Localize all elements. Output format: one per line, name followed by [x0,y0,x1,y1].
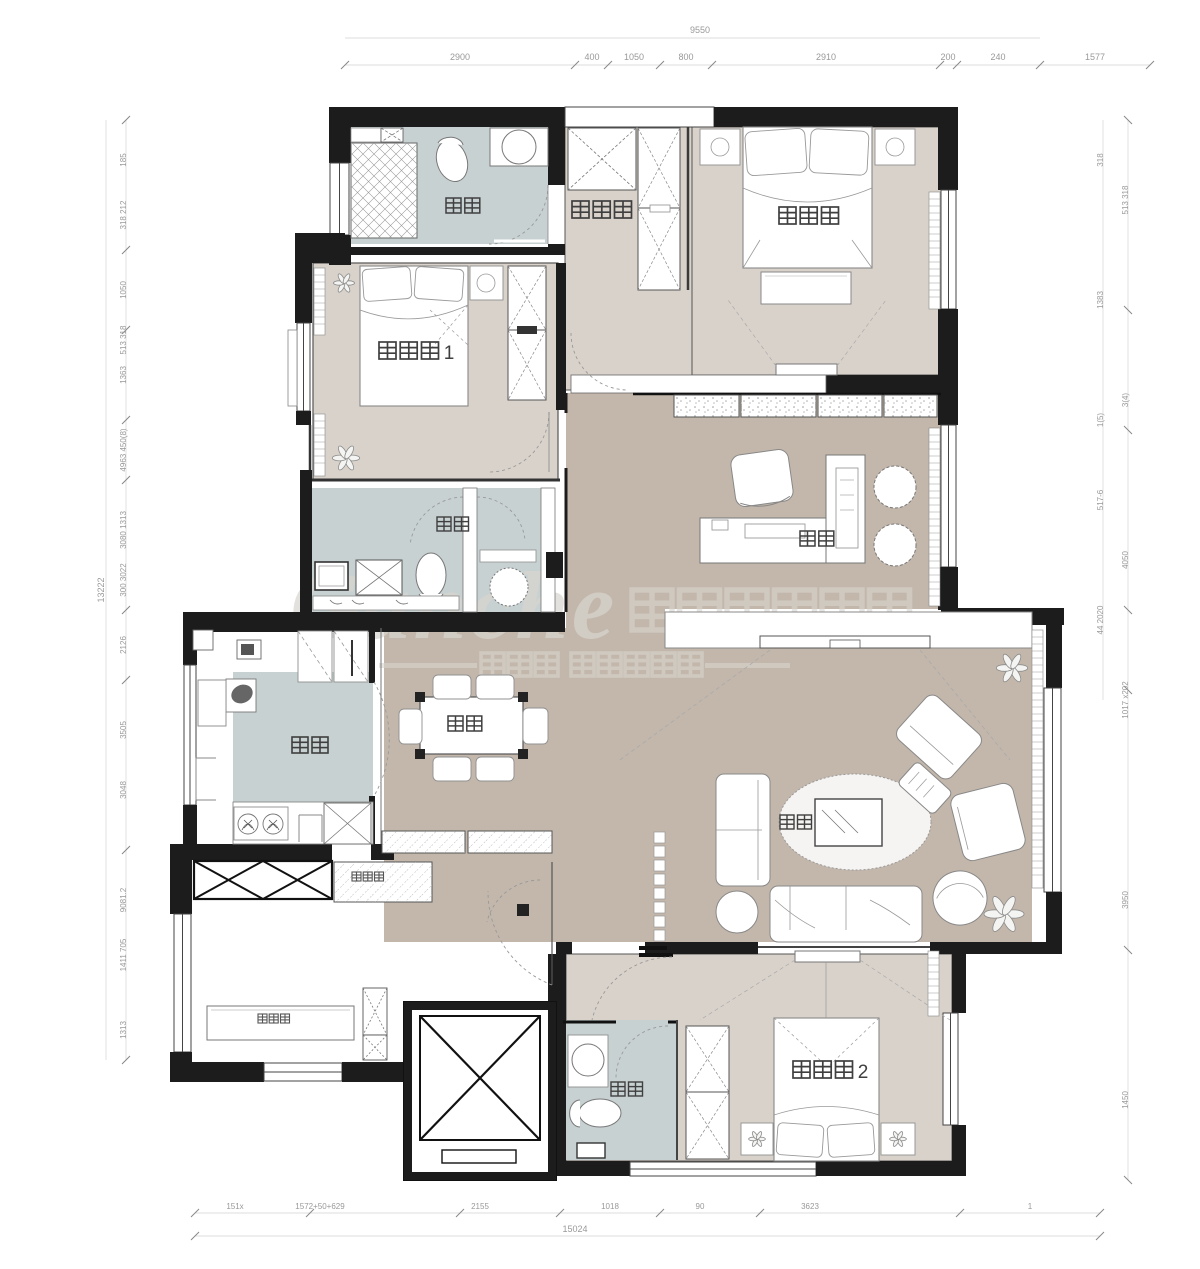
svg-text:3048: 3048 [119,781,128,799]
svg-text:1577: 1577 [1085,52,1105,62]
svg-text:200: 200 [940,52,955,62]
svg-text:800: 800 [678,52,693,62]
svg-text:1: 1 [1028,1202,1033,1211]
svg-text:513 318: 513 318 [119,325,128,354]
svg-text:3505: 3505 [119,721,128,739]
svg-text:44 2020: 44 2020 [1096,605,1105,634]
svg-text:3080 1313: 3080 1313 [119,511,128,549]
svg-text:15024: 15024 [562,1224,587,1234]
svg-text:1050: 1050 [119,281,128,299]
svg-text:2: 2 [858,1062,869,1083]
svg-text:4963 450(8): 4963 450(8) [119,428,128,471]
svg-text:1: 1 [444,343,455,364]
svg-text:1313: 1313 [119,1021,128,1039]
svg-text:9550: 9550 [690,25,710,35]
svg-text:2155: 2155 [471,1202,489,1211]
svg-text:1572+50+629: 1572+50+629 [295,1202,345,1211]
svg-text:513 318: 513 318 [1121,185,1130,214]
svg-text:1(5): 1(5) [1096,413,1105,428]
svg-text:185: 185 [119,153,128,167]
svg-text:1383: 1383 [1096,291,1105,309]
svg-text:1363: 1363 [119,366,128,384]
svg-text:1017 x202: 1017 x202 [1121,681,1130,719]
svg-text:2900: 2900 [450,52,470,62]
svg-text:1018: 1018 [601,1202,619,1211]
svg-text:1450: 1450 [1121,1091,1130,1109]
svg-text:517-6: 517-6 [1096,489,1105,510]
svg-text:151x: 151x [226,1202,243,1211]
svg-text:318 212: 318 212 [119,200,128,229]
svg-text:1411 705: 1411 705 [119,938,128,971]
svg-text:2910: 2910 [816,52,836,62]
svg-text:240: 240 [990,52,1005,62]
svg-text:90: 90 [696,1202,705,1211]
svg-text:4050: 4050 [1121,551,1130,569]
svg-text:3(4): 3(4) [1121,393,1130,408]
svg-text:9081.2: 9081.2 [119,887,128,912]
svg-text:300 3022: 300 3022 [119,563,128,597]
svg-text:400: 400 [584,52,599,62]
svg-text:1050: 1050 [624,52,644,62]
svg-text:318: 318 [1096,153,1105,167]
svg-text:13222: 13222 [96,577,106,602]
svg-text:2126: 2126 [119,636,128,654]
svg-text:3623: 3623 [801,1202,819,1211]
svg-text:3950: 3950 [1121,891,1130,909]
